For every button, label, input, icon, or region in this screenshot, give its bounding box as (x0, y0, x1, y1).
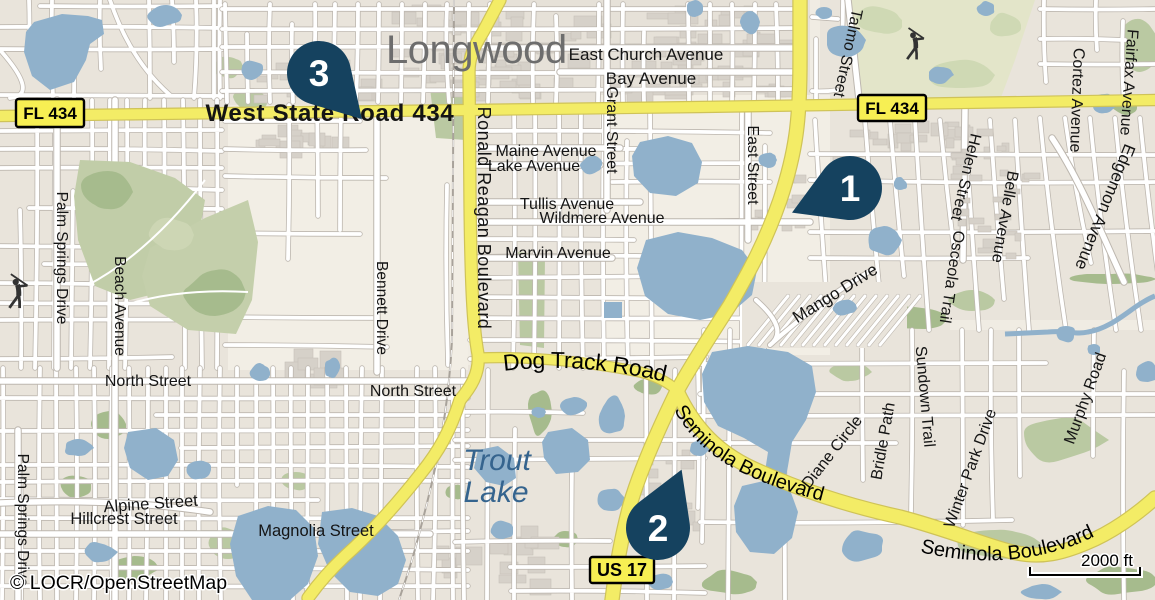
svg-text:Longwood: Longwood (386, 28, 567, 72)
svg-text:Hillcrest Street: Hillcrest Street (70, 510, 178, 528)
svg-text:Palm Springs Drive: Palm Springs Drive (14, 454, 31, 587)
svg-text:Magnolia Street: Magnolia Street (258, 522, 374, 540)
svg-text:Trout: Trout (463, 444, 532, 477)
svg-text:1: 1 (840, 168, 861, 209)
svg-text:© LOCR/OpenStreetMap: © LOCR/OpenStreetMap (10, 572, 227, 594)
svg-text:2000 ft: 2000 ft (1081, 551, 1133, 570)
svg-text:Marvin Avenue: Marvin Avenue (505, 245, 611, 262)
svg-text:North Street: North Street (105, 373, 192, 390)
svg-text:FL 434: FL 434 (23, 104, 77, 123)
svg-text:North Street: North Street (370, 383, 457, 400)
svg-text:Wildmere Avenue: Wildmere Avenue (539, 210, 664, 227)
svg-text:2: 2 (648, 508, 669, 549)
svg-text:FL 434: FL 434 (865, 99, 919, 118)
svg-text:Palm Springs Drive: Palm Springs Drive (53, 192, 70, 325)
svg-text:Lake: Lake (463, 476, 528, 509)
svg-text:East Church Avenue: East Church Avenue (569, 45, 724, 64)
svg-text:US 17: US 17 (597, 560, 647, 580)
svg-text:Grant Street: Grant Street (603, 86, 620, 174)
svg-text:Ronald Reagan Boulevard: Ronald Reagan Boulevard (474, 107, 494, 330)
svg-text:Beach Avenue: Beach Avenue (111, 256, 128, 356)
svg-text:Bennett Drive: Bennett Drive (373, 261, 390, 355)
svg-text:Lake Avenue: Lake Avenue (488, 158, 580, 175)
svg-text:East Street: East Street (744, 125, 761, 205)
svg-text:Bay Avenue: Bay Avenue (606, 69, 696, 88)
svg-text:3: 3 (309, 53, 330, 94)
